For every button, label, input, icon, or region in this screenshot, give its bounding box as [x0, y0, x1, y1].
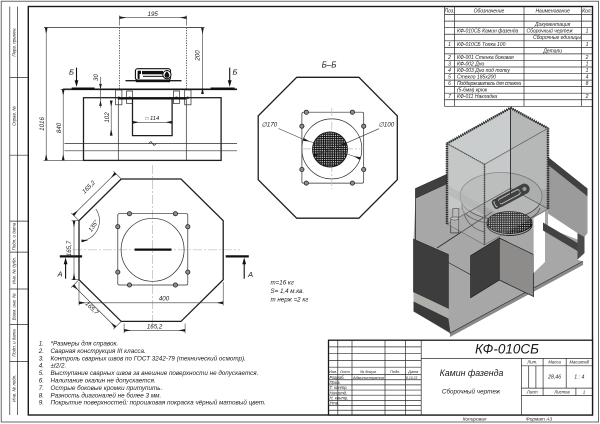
svg-text:Острые боковые кромки притупит: Острые боковые кромки притупить.	[51, 384, 163, 392]
svg-text:5: 5	[448, 75, 451, 81]
svg-text:±t2/2.: ±t2/2.	[51, 363, 67, 370]
svg-text:Б–Б: Б–Б	[322, 61, 337, 70]
svg-text:3: 3	[448, 61, 451, 67]
svg-text:Лит.: Лит.	[526, 360, 537, 365]
svg-text:Б: Б	[69, 68, 74, 77]
svg-text:Сварная конструкция III класса: Сварная конструкция III класса.	[51, 348, 146, 355]
svg-text:Выступание сварных швов за вне: Выступание сварных швов за внешние повер…	[51, 369, 259, 377]
svg-text:Лист: Лист	[526, 389, 538, 394]
svg-text:200: 200	[195, 50, 202, 62]
svg-text:195: 195	[148, 11, 159, 18]
svg-text:Взам. инв. №: Взам. инв. №	[12, 293, 17, 320]
svg-text:(5-6мм) крюк: (5-6мм) крюк	[457, 88, 488, 94]
svg-text:5.: 5.	[39, 370, 44, 377]
svg-text:30: 30	[93, 74, 100, 81]
svg-text:8.10.23: 8.10.23	[406, 376, 417, 380]
svg-text:Камин фазенда: Камин фазенда	[440, 368, 504, 378]
svg-text:∅170: ∅170	[262, 122, 278, 129]
svg-text:1: 1	[586, 68, 589, 74]
svg-text:КФ-002 Дно: КФ-002 Дно	[457, 61, 484, 67]
svg-text:Стекло 185х200: Стекло 185х200	[457, 75, 496, 81]
svg-text:8: 8	[586, 81, 589, 87]
svg-text:1016: 1016	[39, 117, 46, 131]
svg-text:9.: 9.	[39, 400, 44, 407]
svg-text:Дата: Дата	[407, 370, 418, 374]
svg-text:Администратор: Администратор	[352, 375, 385, 380]
svg-text:Налипание окалин не допускаетс: Налипание окалин не допускается.	[51, 377, 156, 385]
svg-text:8.: 8.	[39, 392, 44, 399]
svg-text:А: А	[247, 270, 253, 279]
svg-text:Поз.: Поз.	[444, 8, 454, 14]
svg-text:Масса: Масса	[548, 360, 561, 365]
svg-text:1: 1	[586, 42, 589, 48]
svg-text:Справ. №: Справ. №	[12, 106, 17, 126]
svg-text:Контроль сварных швов по ГОСТ: Контроль сварных швов по ГОСТ 3242-79 (т…	[51, 354, 246, 362]
svg-text:1: 1	[448, 42, 451, 48]
svg-text:Детали: Детали	[542, 48, 562, 54]
svg-text:1.: 1.	[39, 341, 44, 348]
svg-text:7: 7	[448, 94, 451, 100]
svg-text:1: 1	[586, 61, 589, 67]
svg-text:Сборочный чертеж: Сборочный чертеж	[527, 28, 574, 35]
svg-text:2: 2	[585, 94, 589, 100]
svg-text:4: 4	[448, 68, 451, 74]
svg-text:КФ-011 Накладка: КФ-011 Накладка	[457, 94, 497, 100]
svg-text:Разность диагоналей не более 3: Разность диагоналей не более 3 мм.	[51, 391, 162, 399]
svg-text:Листов: Листов	[553, 389, 570, 394]
svg-text:400: 400	[159, 296, 170, 303]
svg-text:2.: 2.	[38, 348, 44, 355]
svg-text:Перв. примен.: Перв. примен.	[12, 27, 17, 56]
svg-text:КФ-010СБ Камин фазенда: КФ-010СБ Камин фазенда	[457, 29, 519, 35]
svg-text:S= 1,4 м.кв.: S= 1,4 м.кв.	[271, 288, 305, 295]
svg-text:1 : 4: 1 : 4	[574, 375, 584, 381]
svg-text:*Размеры для справок.: *Размеры для справок.	[51, 340, 119, 348]
svg-text:КФ-001 Стенка боковая: КФ-001 Стенка боковая	[457, 55, 514, 61]
svg-text:Подп. и дата: Подп. и дата	[12, 222, 17, 250]
svg-text:Документация: Документация	[534, 22, 571, 28]
svg-text:Обозначение: Обозначение	[474, 8, 505, 14]
svg-text:Копировал: Копировал	[463, 417, 487, 423]
svg-text:Наименование: Наименование	[535, 8, 570, 14]
svg-text:165,2: 165,2	[147, 323, 163, 330]
svg-text:3.: 3.	[39, 355, 44, 362]
svg-text:Подп.: Подп.	[390, 370, 400, 374]
svg-text:КФ-010СБ: КФ-010СБ	[475, 342, 539, 357]
svg-text:№ докум.: № докум.	[360, 370, 377, 374]
svg-text:Подп. и дата: Подп. и дата	[12, 329, 17, 357]
svg-text:Покрытие поверхностей: порошко: Покрытие поверхностей: порошковая покрас…	[51, 399, 266, 407]
svg-text:Формат А3: Формат А3	[526, 417, 553, 423]
svg-text:КФ-003 Дно под топку: КФ-003 Дно под топку	[457, 68, 510, 74]
svg-text:Лист: Лист	[339, 370, 350, 374]
svg-text:m нерж =2 кг: m нерж =2 кг	[271, 297, 309, 304]
svg-text:28,46: 28,46	[547, 375, 561, 381]
svg-text:Утв.: Утв.	[330, 401, 340, 406]
svg-text:Сборочный чертеж: Сборочный чертеж	[442, 388, 501, 396]
svg-text:2: 2	[447, 55, 451, 61]
svg-text:1: 1	[586, 29, 589, 35]
svg-text:6: 6	[448, 81, 451, 87]
svg-text:165,7: 165,7	[66, 240, 73, 256]
svg-text:7.: 7.	[39, 385, 44, 392]
svg-text:∅100: ∅100	[379, 122, 395, 129]
svg-text:Масштаб: Масштаб	[570, 360, 590, 365]
svg-text:Изм.: Изм.	[329, 370, 337, 374]
svg-text:6.: 6.	[39, 378, 44, 385]
svg-text:4.: 4.	[39, 363, 44, 370]
svg-text:102: 102	[104, 112, 111, 123]
svg-text:4: 4	[586, 75, 589, 81]
svg-text:840: 840	[56, 122, 63, 133]
svg-text:m=16 кг: m=16 кг	[271, 280, 294, 287]
svg-text:Инв. № подл.: Инв. № подл.	[12, 375, 17, 402]
svg-text:□ 114: □ 114	[145, 116, 159, 122]
svg-text:А: А	[57, 270, 63, 279]
svg-text:2: 2	[585, 55, 589, 61]
svg-text:КФ-010СБ Топка 100: КФ-010СБ Топка 100	[457, 42, 506, 48]
svg-text:Б: Б	[233, 68, 238, 77]
svg-text:Инв. № дубл.: Инв. № дубл.	[12, 257, 17, 284]
svg-text:Поддерживатель для стекла: Поддерживатель для стекла	[457, 81, 521, 87]
svg-text:Сборочные единицы: Сборочные единицы	[533, 35, 581, 41]
svg-text:1: 1	[583, 389, 585, 394]
svg-text:Кол.: Кол.	[582, 8, 592, 14]
